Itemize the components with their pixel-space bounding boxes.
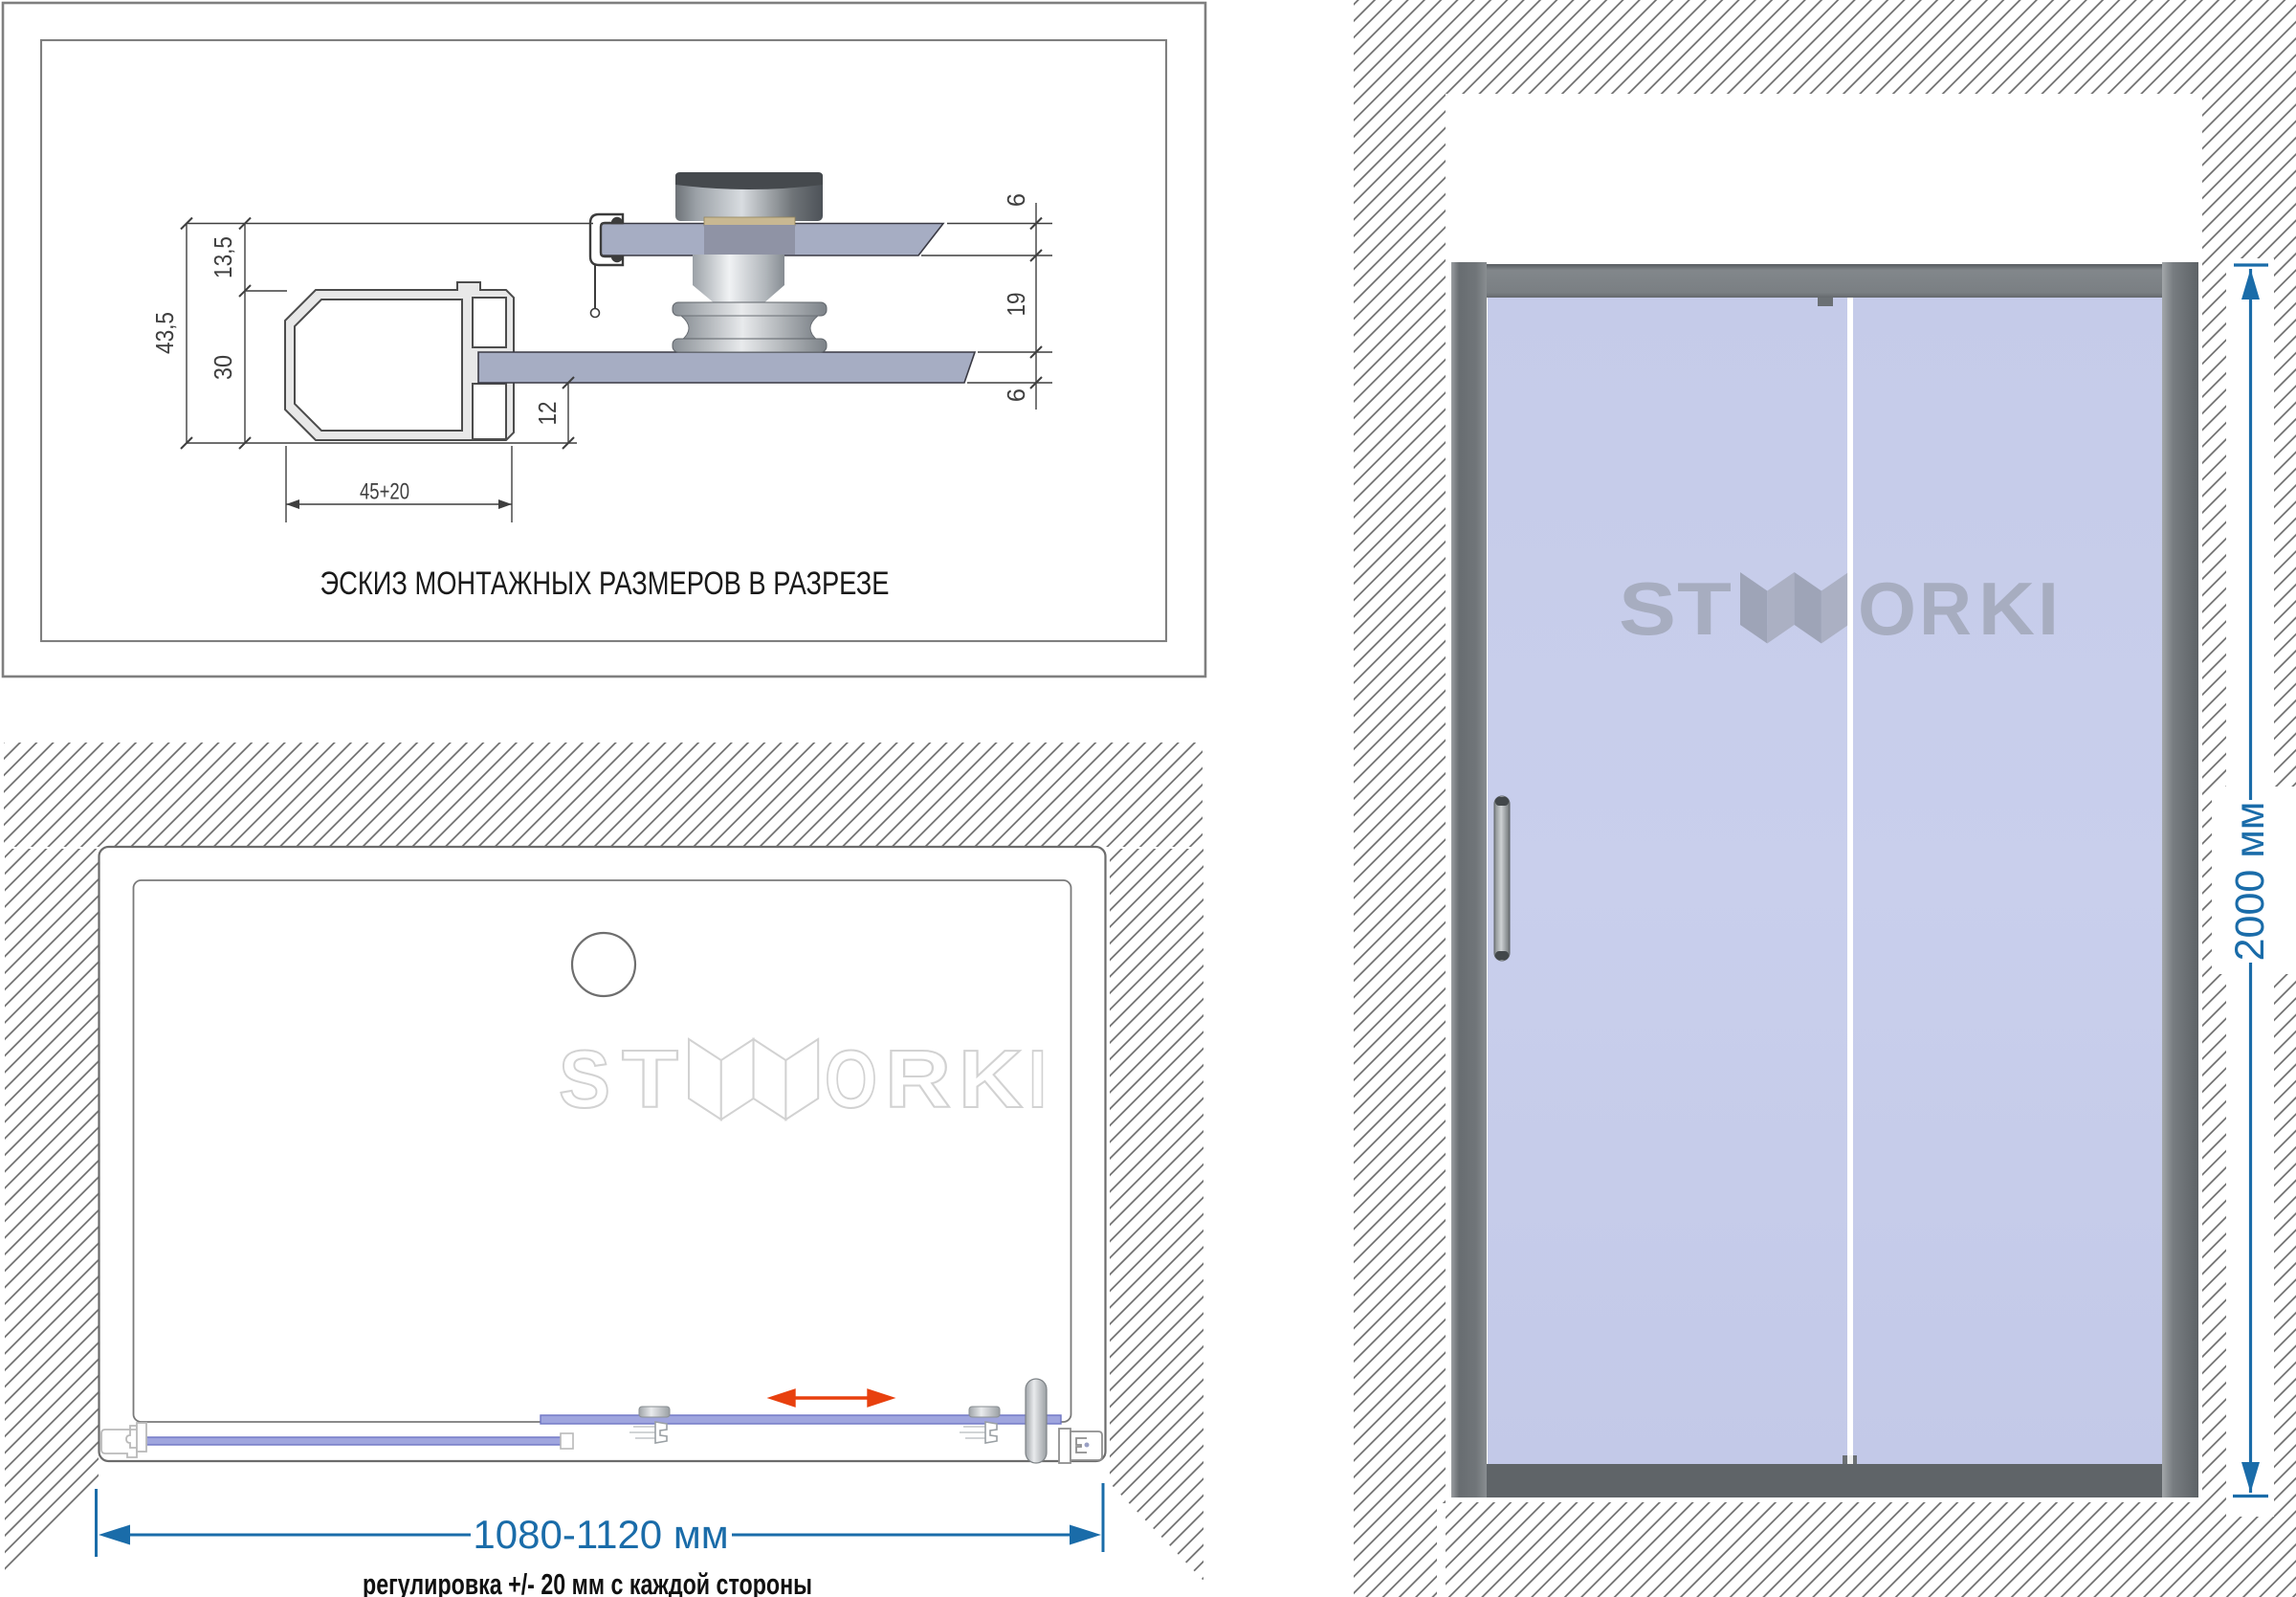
svg-text:43,5: 43,5 bbox=[152, 312, 179, 354]
svg-text:6: 6 bbox=[1004, 388, 1030, 402]
svg-text:30: 30 bbox=[210, 355, 237, 380]
svg-text:R: R bbox=[1919, 566, 1972, 651]
svg-text:I: I bbox=[2038, 566, 2059, 651]
svg-text:O: O bbox=[825, 1034, 877, 1125]
svg-text:12: 12 bbox=[535, 402, 562, 426]
svg-text:1080-1120 мм: 1080-1120 мм bbox=[473, 1512, 728, 1557]
svg-text:K: K bbox=[1978, 566, 2035, 651]
svg-text:регулировка +/- 20 мм с каждой: регулировка +/- 20 мм с каждой стороны bbox=[363, 1568, 812, 1597]
svg-text:K: K bbox=[959, 1034, 1023, 1125]
svg-text:T: T bbox=[1677, 566, 1732, 651]
svg-text:6: 6 bbox=[1004, 193, 1030, 207]
svg-text:T: T bbox=[622, 1034, 678, 1125]
svg-text:S: S bbox=[559, 1034, 610, 1125]
svg-text:45+20: 45+20 bbox=[360, 479, 409, 505]
svg-text:13,5: 13,5 bbox=[210, 236, 237, 278]
svg-text:ЭСКИЗ МОНТАЖНЫХ РАЗМЕРОВ В РАЗ: ЭСКИЗ МОНТАЖНЫХ РАЗМЕРОВ В РАЗРЕЗЕ bbox=[320, 566, 890, 602]
svg-text:2000 мм: 2000 мм bbox=[2227, 802, 2273, 962]
svg-text:R: R bbox=[885, 1034, 951, 1125]
svg-text:19: 19 bbox=[1004, 293, 1030, 317]
svg-text:O: O bbox=[1858, 566, 1916, 651]
svg-text:S: S bbox=[1619, 566, 1676, 651]
svg-text:I: I bbox=[1028, 1034, 1047, 1125]
